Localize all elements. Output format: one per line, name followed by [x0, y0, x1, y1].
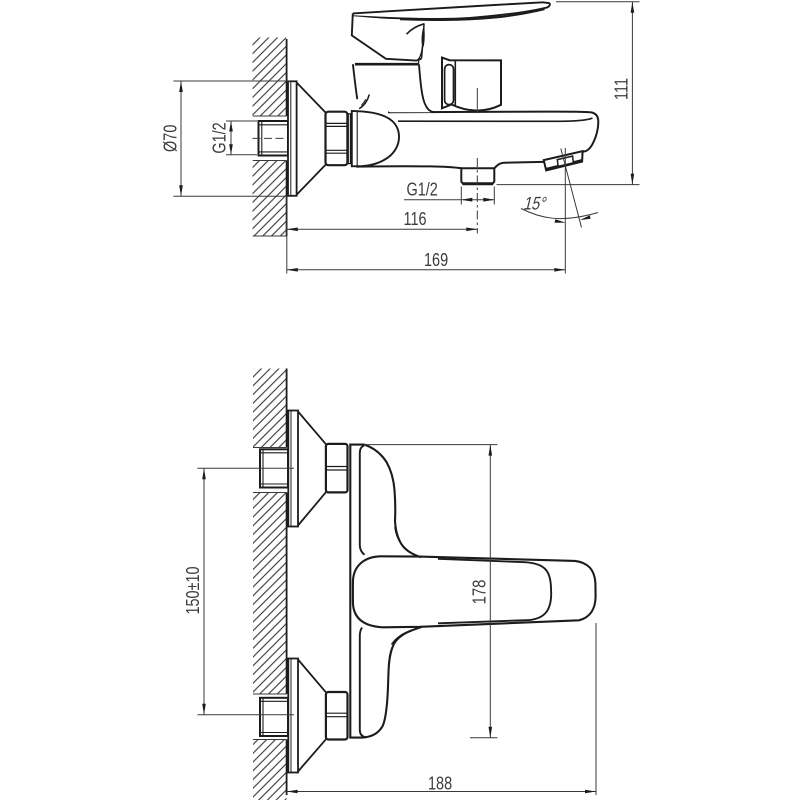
svg-text:15°: 15°	[522, 193, 549, 214]
svg-text:G1/2: G1/2	[210, 122, 230, 153]
svg-text:169: 169	[424, 250, 448, 270]
svg-text:Ø70: Ø70	[161, 125, 181, 152]
svg-text:188: 188	[428, 774, 452, 794]
svg-text:116: 116	[404, 209, 427, 229]
svg-text:G1/2: G1/2	[407, 180, 438, 200]
svg-text:111: 111	[612, 78, 632, 100]
svg-text:150±10: 150±10	[184, 566, 204, 614]
svg-text:178: 178	[469, 580, 490, 605]
